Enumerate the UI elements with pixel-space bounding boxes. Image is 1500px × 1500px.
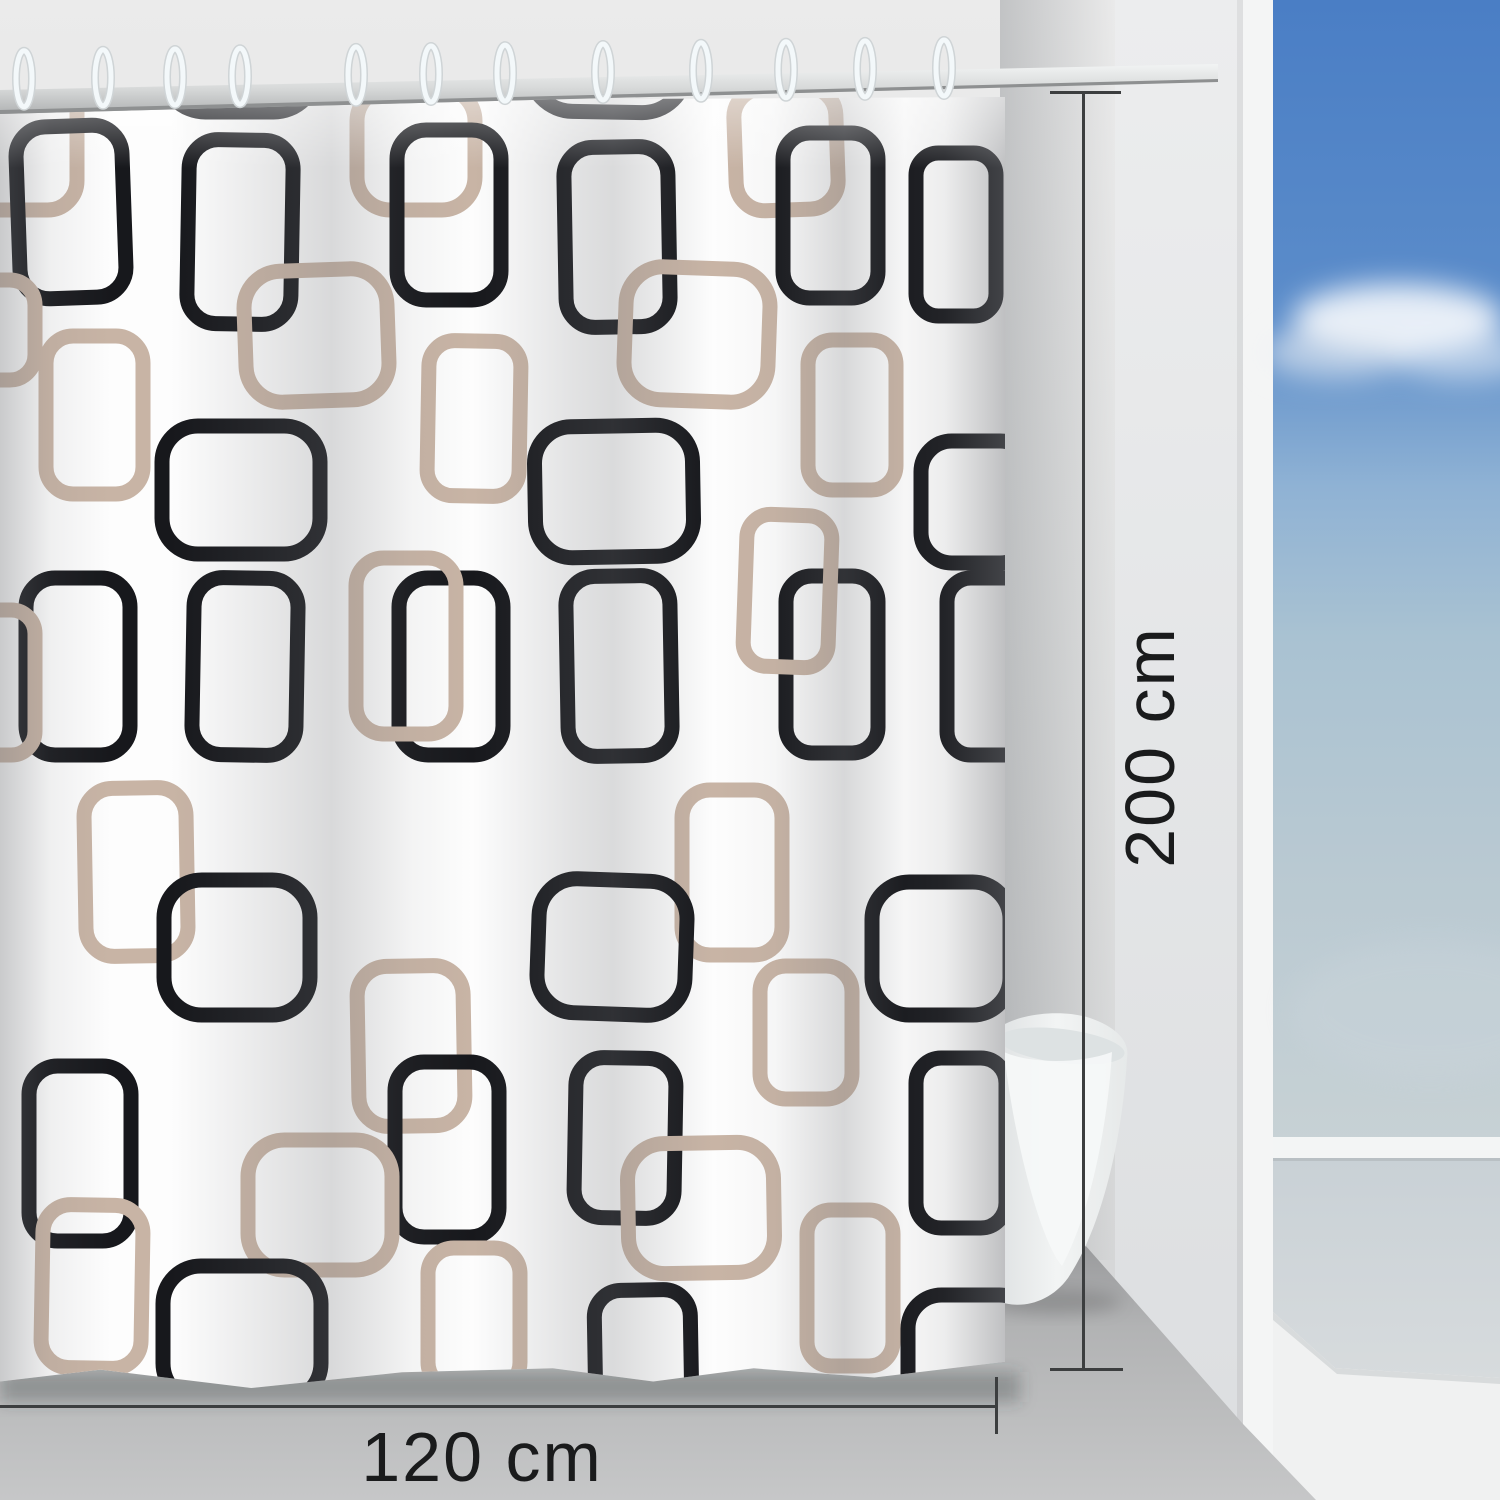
- width-label: 120 cm: [282, 1420, 682, 1495]
- product-image: 200 cm 120 cm: [0, 0, 1500, 1500]
- height-dimension-line: [1082, 92, 1085, 1370]
- height-dimension-cap-top: [1050, 91, 1121, 94]
- width-dimension-cap-right: [995, 1377, 998, 1434]
- width-dimension-line: [0, 1405, 997, 1408]
- height-label: 200 cm: [1111, 547, 1189, 947]
- rod-and-rings: [0, 0, 1500, 1500]
- height-dimension-cap-bottom: [1050, 1368, 1123, 1371]
